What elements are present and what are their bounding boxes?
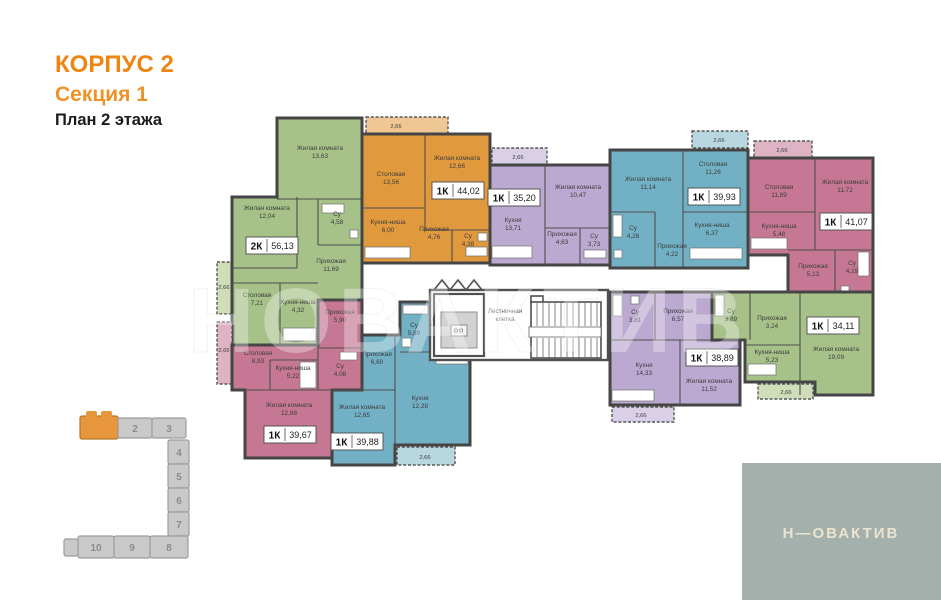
room-name: Су — [464, 233, 473, 240]
room-area: 13,56 — [383, 179, 399, 186]
unit-label: 1К 39,67 — [264, 426, 316, 443]
unit-area: 39,93 — [713, 192, 736, 202]
room-area: 11,14 — [640, 184, 656, 191]
locator-number: 8 — [166, 543, 172, 554]
balcony — [366, 117, 448, 134]
floor-title: План 2 этажа — [55, 111, 163, 129]
room-name: Столовая — [699, 161, 728, 168]
room-area: 4,58 — [331, 219, 344, 226]
watermark: НОВАКТИВ — [188, 270, 750, 372]
balcony-area: 2,66 — [635, 413, 646, 419]
unit-area: 41,07 — [845, 217, 868, 227]
unit-type: 1К — [693, 193, 706, 204]
unit-label: 1К 41,07 — [820, 213, 872, 230]
room-area: 6,00 — [382, 227, 395, 234]
room-area: 4,08 — [334, 371, 347, 378]
room-name: Жилая комната — [297, 145, 344, 152]
locator-bump — [86, 411, 97, 418]
room-area: 13,63 — [312, 153, 328, 160]
unit-label: 2К 56,13 — [246, 237, 298, 254]
floor-plan-page: КОРПУС 2 Секция 1 План 2 этажа Жилая ком… — [0, 0, 941, 600]
room-area: 4,38 — [462, 241, 475, 248]
room-area: 12,66 — [449, 163, 465, 170]
room-name: Кухня-ниша — [370, 219, 405, 226]
unit-type: 1К — [812, 322, 825, 333]
room-name: Прихожая — [798, 263, 828, 270]
room-name: Жилая комната — [555, 184, 602, 191]
section-locator: 2 3 4 5 6 7 8 9 10 — [64, 411, 189, 558]
unit-type: 1К — [437, 187, 450, 198]
locator-end-tab — [64, 539, 78, 556]
room-area: 12,04 — [259, 213, 275, 220]
unit-type: 2К — [251, 242, 264, 253]
room-name: Су — [333, 211, 342, 218]
balcony-area: 2,66 — [713, 138, 724, 144]
locator-number: 5 — [176, 472, 182, 483]
room-area: 3,73 — [588, 241, 601, 248]
room-name: Жилая комната — [686, 378, 733, 385]
unit-area: 39,88 — [356, 437, 379, 447]
plan-header: КОРПУС 2 Секция 1 План 2 этажа — [55, 51, 174, 129]
floor-plan-canvas: КОРПУС 2 Секция 1 План 2 этажа Жилая ком… — [0, 0, 941, 600]
unit-type: 1К — [269, 431, 282, 442]
room-name: Кухня-ниша — [761, 223, 796, 230]
locator-bump — [101, 411, 112, 418]
room-name: Жилая комната — [625, 176, 672, 183]
room-area: 11,72 — [837, 187, 853, 194]
unit-area: 35,20 — [513, 193, 536, 203]
unit-area: 56,13 — [271, 241, 294, 251]
room-name: Кухня-ниша — [694, 222, 729, 229]
room-area: 12,88 — [281, 410, 297, 417]
unit-area: 34,11 — [833, 321, 855, 331]
room-name: Жилая комната — [244, 205, 291, 212]
room-area: 4,63 — [556, 239, 569, 246]
unit-type: 1К — [493, 194, 506, 205]
unit-type: 1К — [825, 218, 838, 229]
room-name: Столовая — [377, 171, 406, 178]
locator-number: 3 — [166, 424, 172, 435]
room-area: 11,26 — [705, 169, 721, 176]
room-name: Жилая комната — [822, 179, 869, 186]
balcony-area: 2,66 — [419, 455, 430, 461]
room-area: 12,28 — [412, 403, 428, 410]
locator-number: 7 — [176, 520, 182, 531]
balcony-area: 2,66 — [776, 148, 787, 154]
apartment-1k-3520[interactable]: Жилая комната 10,47 Кухня 13,71 Прихожая… — [488, 148, 610, 265]
room-area: 5,48 — [773, 231, 786, 238]
unit-area: 44,02 — [457, 186, 480, 196]
room-name: Прихожая — [657, 243, 687, 250]
room-name: Су — [590, 233, 599, 240]
room-area: 4,19 — [846, 268, 859, 275]
room-area: 11,89 — [771, 192, 787, 199]
unit-label: 1К 39,88 — [331, 433, 383, 450]
building-title: КОРПУС 2 — [55, 51, 174, 78]
room-name: Су — [629, 225, 638, 232]
room-area: 3,24 — [766, 323, 779, 330]
room-area: 6,37 — [706, 230, 719, 237]
locator-section-1-active[interactable] — [80, 411, 118, 439]
room-name: Прихожая — [316, 258, 346, 265]
room-area: 19,09 — [828, 354, 844, 361]
locator-number: 6 — [176, 496, 182, 507]
developer-logo: Н—ОВАКТИВ — [742, 463, 941, 600]
room-name: Жилая комната — [339, 404, 386, 411]
room-name: Кухня-ниша — [754, 349, 789, 356]
unit-label: 1К 44,02 — [432, 182, 484, 199]
locator-number: 9 — [129, 543, 135, 554]
room-area: 11,52 — [701, 386, 717, 393]
locator-number: 4 — [176, 448, 182, 459]
room-name: Прихожая — [547, 231, 577, 238]
section-title: Секция 1 — [55, 83, 148, 106]
apartment-1k-3993[interactable]: Жилая комната 11,14 Столовая 11,26 Кухня… — [610, 131, 748, 268]
room-area: 4,28 — [627, 233, 640, 240]
unit-type: 1К — [336, 438, 349, 449]
room-name: Жилая комната — [813, 346, 860, 353]
unit-label: 1К 34,11 — [807, 317, 859, 334]
room-area: 4,22 — [666, 251, 679, 258]
room-name: Столовая — [765, 184, 794, 191]
room-area: 5,13 — [807, 271, 820, 278]
room-name: Жилая комната — [266, 402, 313, 409]
apartment-1k-4107[interactable]: Столовая 11,89 Жилая комната 11,72 Кухня… — [748, 141, 873, 298]
balcony-area: 2,66 — [512, 155, 523, 161]
balcony-area: 2,66 — [390, 124, 401, 130]
unit-label: 1К 35,20 — [488, 189, 540, 206]
locator-number: 10 — [90, 543, 102, 554]
unit-area: 39,67 — [289, 430, 312, 440]
locator-number: 2 — [132, 424, 138, 435]
room-area: 5,22 — [287, 373, 300, 380]
room-name: Су — [848, 260, 857, 267]
room-area: 13,71 — [505, 225, 521, 232]
logo-wordmark: Н—ОВАКТИВ — [783, 525, 900, 542]
room-area: 5,23 — [766, 357, 779, 364]
room-area: 4,76 — [428, 234, 441, 241]
room-area: 12,65 — [354, 412, 370, 419]
balcony-area: 2,66 — [780, 390, 791, 396]
room-name: Кухня — [411, 395, 429, 402]
room-area: 10,47 — [570, 192, 586, 199]
room-name: Кухня — [504, 217, 522, 224]
room-name: Прихожая — [419, 226, 449, 233]
apartment-1k-4402[interactable]: Столовая 13,56 Жилая комната 12,66 Кухня… — [362, 117, 490, 263]
room-name: Прихожая — [757, 315, 787, 322]
room-name: Жилая комната — [434, 155, 481, 162]
unit-label: 1К 39,93 — [688, 188, 740, 205]
